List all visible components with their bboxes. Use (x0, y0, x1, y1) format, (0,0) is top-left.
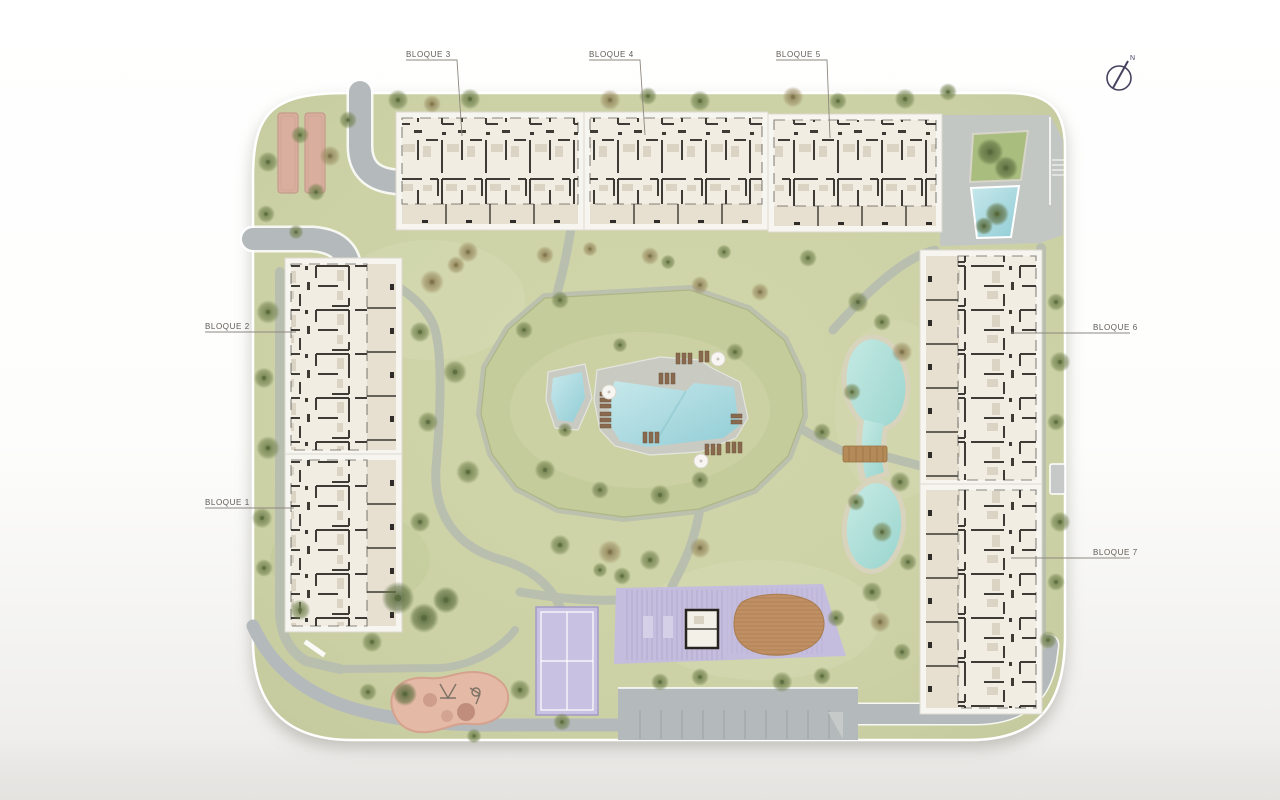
sun-lounger (671, 373, 675, 384)
sun-lounger (688, 353, 692, 364)
entrance-plaza (940, 115, 1064, 246)
sun-lounger (665, 373, 669, 384)
sun-lounger (600, 424, 611, 428)
compass-north-label: N (1130, 55, 1135, 62)
floor-plan-pattern (402, 118, 578, 204)
floor-plan-pattern (291, 264, 367, 450)
sun-lounger (717, 444, 721, 455)
padel-court (536, 607, 598, 715)
sun-lounger (600, 412, 611, 416)
label-bloque-4: BLOQUE 4 (589, 50, 634, 59)
floor-plan-pattern (774, 120, 936, 206)
sun-lounger (711, 444, 715, 455)
site-plan-svg: BLOQUE 3 BLOQUE 4 BLOQUE 5 BLOQUE 2 BLOQ… (0, 0, 1280, 800)
sun-lounger (682, 353, 686, 364)
utility-pad (1050, 464, 1065, 494)
sun-lounger (705, 444, 709, 455)
terrace-band (367, 264, 396, 450)
label-bloque-7: BLOQUE 7 (1093, 548, 1138, 557)
sun-lounger (699, 351, 703, 362)
sun-lounger (600, 418, 611, 422)
sun-lounger (600, 404, 611, 408)
building-bloque-5[interactable] (768, 114, 942, 232)
label-bloque-5: BLOQUE 5 (776, 50, 821, 59)
sun-lounger (643, 432, 647, 443)
sun-lounger (726, 442, 730, 453)
gym-mat (663, 616, 673, 638)
site-plan-canvas: BLOQUE 3 BLOQUE 4 BLOQUE 5 BLOQUE 2 BLOQ… (0, 0, 1280, 800)
north-compass: N (1107, 55, 1135, 90)
sun-lounger (731, 420, 742, 424)
sun-lounger (649, 432, 653, 443)
sun-lounger (738, 442, 742, 453)
label-bloque-2: BLOQUE 2 (205, 322, 250, 331)
label-bloque-1: BLOQUE 1 (205, 498, 250, 507)
sun-lounger (705, 351, 709, 362)
building-bloque-2[interactable] (285, 258, 402, 456)
sun-lounger (655, 432, 659, 443)
floor-plan-pattern (590, 118, 762, 204)
label-bloque-3: BLOQUE 3 (406, 50, 451, 59)
sun-lounger (676, 353, 680, 364)
sun-lounger (732, 442, 736, 453)
compass-needle (1113, 61, 1128, 88)
floor-plan-pattern (958, 256, 1036, 480)
sun-lounger (731, 414, 742, 418)
building-bloque-6[interactable] (920, 250, 1042, 486)
lake-bridge (843, 446, 887, 462)
building-bloque-3[interactable] (396, 112, 584, 230)
building-bloque-7[interactable] (920, 484, 1042, 714)
pool-house (686, 610, 718, 648)
parking-lot (618, 688, 858, 740)
label-bloque-6: BLOQUE 6 (1093, 323, 1138, 332)
gym-mat (643, 616, 653, 638)
main-pool (609, 381, 739, 447)
sports-deck-zone (614, 584, 846, 664)
building-bloque-4[interactable] (584, 112, 768, 230)
sun-lounger (659, 373, 663, 384)
floor-plan-pattern (958, 490, 1036, 708)
